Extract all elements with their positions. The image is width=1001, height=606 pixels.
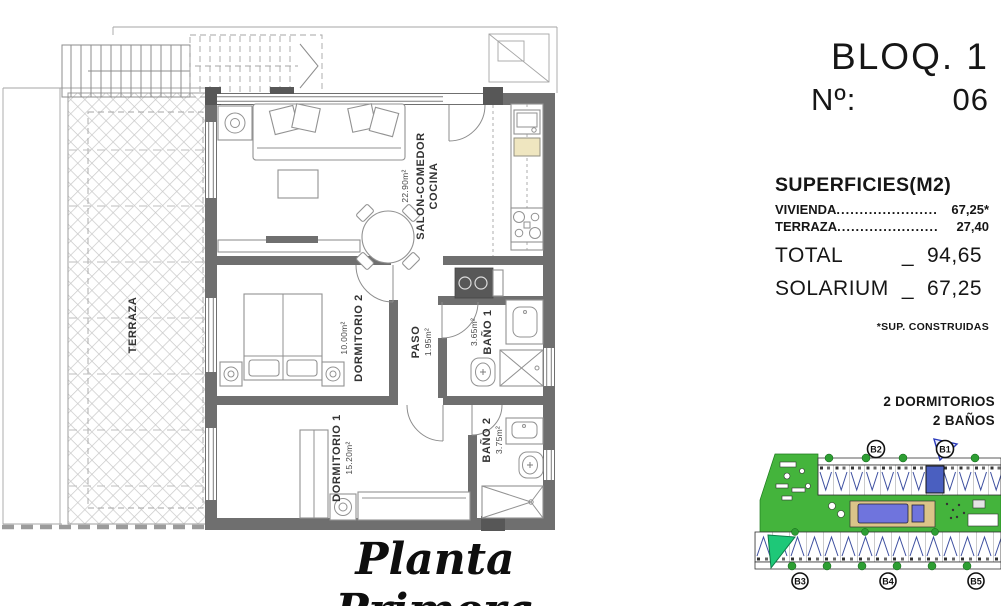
unit-features: 2 DORMITORIOS 2 BAÑOS [883,392,995,430]
building-row-bottom [755,529,1001,571]
surface-value: 27,40 [956,219,989,236]
building-row-top [818,454,1001,495]
surface-row-vivienda: VIVIENDA ...................... 67,25* [775,202,989,219]
bedroom1-furniture [300,430,470,520]
surface-value: 67,25* [951,202,989,219]
surfaces-title: SUPERFICIES(M2) [775,174,989,197]
room-label-dorm1: DORMITORIO 1 [331,414,343,502]
unit-number-value: 06 [953,82,989,118]
surface-total-row: TOTAL _ 94,65 [775,244,989,268]
dots-leader: ...................... [837,219,956,236]
room-area-bano1: 3.65m² [469,318,479,346]
unit-number-row: Nº: 06 [811,82,989,118]
room-label-salon-1: SALON-COMEDOR [415,132,427,239]
living-room-furniture [218,104,420,270]
bedroom2-furniture [220,294,344,386]
room-label-terraza: TERRAZA [127,297,139,354]
badge-b2: B2 [870,445,882,455]
room-area-dorm1: 15.20m² [344,441,354,474]
room-label-bano1: BAÑO 1 [481,309,494,354]
unit-number-label: Nº: [811,82,856,118]
room-area-bano2: 3.75m² [494,426,504,454]
dots-leader: ...................... [836,202,951,219]
total-separator: _ [902,244,914,268]
block-title: BLOQ. 1 [811,36,989,78]
kitchen-furniture [455,104,543,298]
surface-label: TERRAZA [775,219,837,236]
feature-bedrooms: 2 DORMITORIOS [883,392,995,411]
badge-b5: B5 [970,577,982,587]
feature-bathrooms: 2 BAÑOS [883,411,995,430]
floor-plan-drawing: TERRAZA 22.90m² SALON-COMEDOR COCINA 10.… [0,0,620,606]
surface-label: VIVIENDA [775,202,836,219]
solarium-value: 67,25 [927,277,989,301]
total-label: TOTAL [775,244,843,268]
plan-caption: Planta Primera [272,534,598,606]
room-label-paso: PASO [410,326,422,359]
surface-row-terraza: TERRAZA ...................... 27,40 [775,219,989,236]
room-area-salon: 22.90m² [400,169,410,202]
pool-small [912,505,924,522]
site-plan: B1 B2 B3 B4 B5 [735,438,1001,606]
solarium-label: SOLARIUM [775,277,889,301]
solarium-separator: _ [902,277,914,301]
room-area-dorm2: 10.00m² [339,321,349,354]
total-value: 94,65 [927,244,989,268]
highlighted-unit [926,466,944,493]
room-label-bano2: BAÑO 2 [480,417,493,462]
room-area-paso: 1.95m² [423,328,433,356]
badge-b1: B1 [939,445,951,455]
pool-main [858,504,908,523]
room-label-salon-2: COCINA [428,163,440,210]
room-label-dorm2: DORMITORIO 2 [353,294,365,382]
badge-b4: B4 [882,577,894,587]
title-block: BLOQ. 1 Nº: 06 [811,36,989,118]
surfaces-panel: SUPERFICIES(M2) VIVIENDA ...............… [775,174,989,333]
terrace [2,88,207,527]
surface-solarium-row: SOLARIUM _ 67,25 [775,277,989,301]
staircase [62,27,557,97]
surfaces-footnote: *SUP. CONSTRUIDAS [775,321,989,333]
floorplan-sheet: TERRAZA 22.90m² SALON-COMEDOR COCINA 10.… [0,0,1001,606]
badge-b3: B3 [794,577,806,587]
